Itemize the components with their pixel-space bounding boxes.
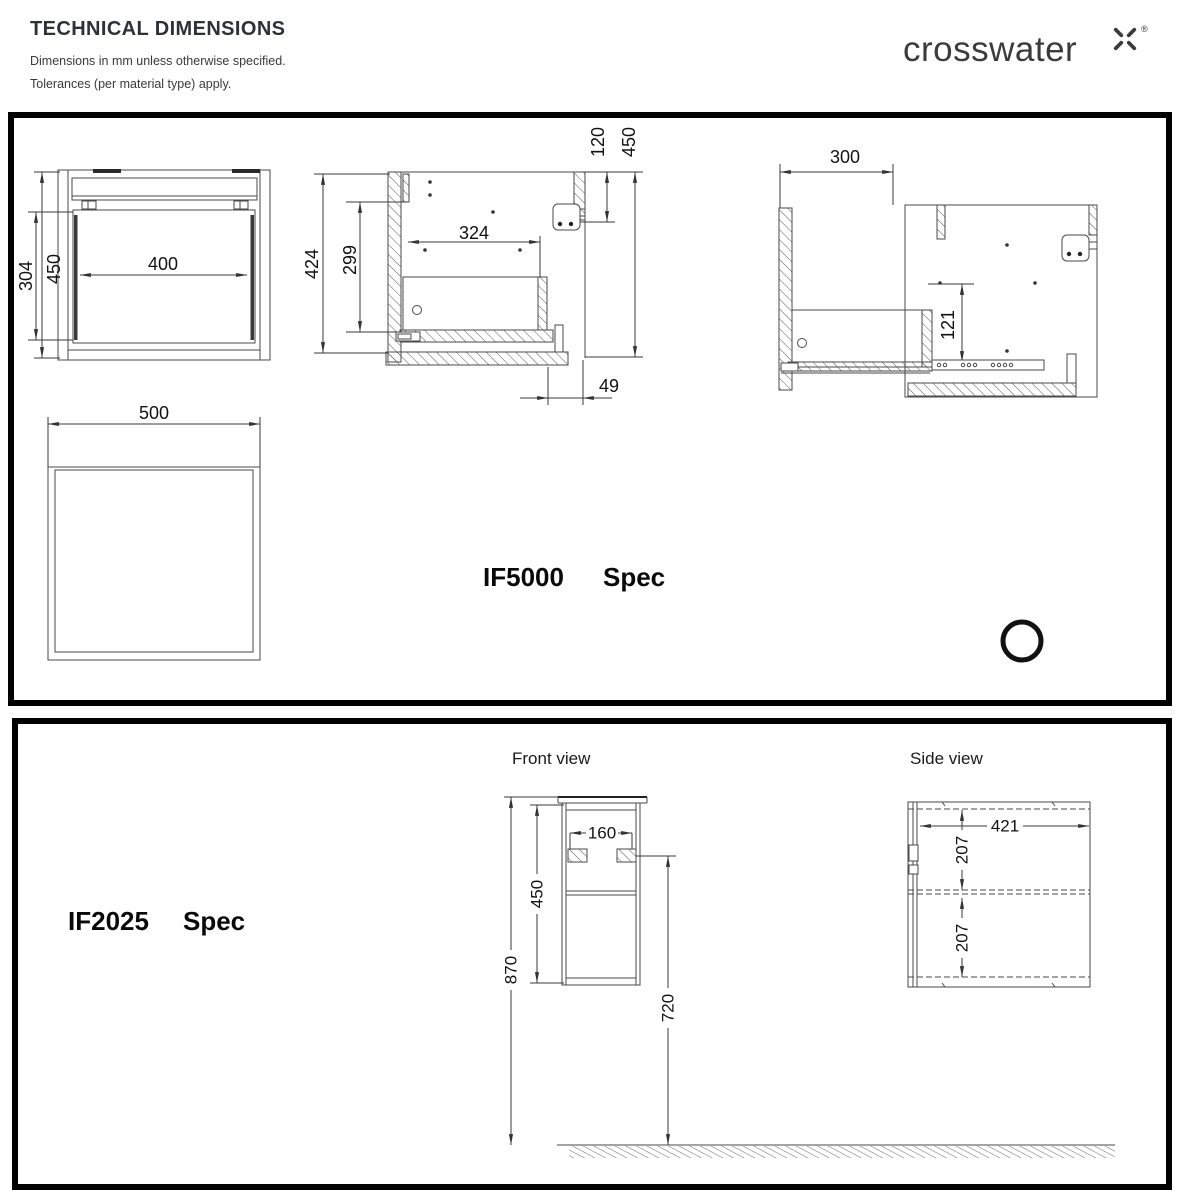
dim-section-drawer-height: 299 [340, 245, 360, 275]
technical-dimensions-sheet: { "header": { "title": "TECHNICAL DIMENS… [0, 0, 1200, 1200]
dim-front-height: 450 [44, 254, 64, 284]
if2025-panel: Front view Side view IF2025 Spec 160 450 [12, 718, 1172, 1190]
dim-section-bracket-offset: 120 [588, 127, 608, 157]
dim-overall-height: 870 [502, 956, 521, 984]
dim-hinge-span: 160 [588, 824, 616, 843]
side-view-title: Side view [910, 749, 983, 768]
if2025-panel-border [15, 721, 1169, 1187]
dim-open-drop: 121 [938, 310, 958, 340]
if5000-drawing-canvas: 400 304 450 [8, 112, 1172, 706]
dim-open-extension: 300 [830, 147, 860, 167]
note-units: Dimensions in mm unless otherwise specif… [30, 54, 286, 68]
dim-side-bottom-section: 207 [953, 924, 972, 952]
dim-side-depth: 421 [991, 817, 1019, 836]
if5000-model-name: IF5000 [483, 562, 564, 592]
if5000-panel-border [11, 115, 1169, 703]
registered-mark: ® [1141, 24, 1148, 34]
front-view-title: Front view [512, 749, 591, 768]
dim-front-inner-height: 304 [16, 261, 36, 291]
note-tolerances: Tolerances (per material type) apply. [30, 77, 231, 91]
detail-circle-mark [1003, 622, 1041, 660]
dim-front-inner-width: 400 [148, 254, 178, 274]
dim-side-top-section: 207 [953, 836, 972, 864]
if2025-front-view-drawing: 160 450 870 720 [502, 797, 678, 1145]
ground-line [557, 1145, 1115, 1158]
crosswater-logo: crosswater ® [903, 30, 1163, 85]
dim-section-depth: 450 [619, 127, 639, 157]
dim-plan-width: 500 [139, 403, 169, 423]
if2025-drawing-canvas: Front view Side view IF2025 Spec 160 450 [12, 718, 1172, 1190]
if5000-panel: 400 304 450 [8, 112, 1172, 706]
dim-section-inner-depth: 324 [459, 223, 489, 243]
if2025-model-name: IF2025 [68, 906, 149, 936]
dim-section-toe-offset: 49 [599, 376, 619, 396]
if5000-section-view-drawing: 424 299 324 120 450 49 [302, 127, 643, 405]
brand-wordmark: crosswater [903, 30, 1077, 69]
if5000-open-view-drawing: 300 121 [779, 147, 1097, 397]
if2025-side-view-drawing: 421 207 207 [908, 802, 1090, 987]
if5000-spec-label: Spec [603, 562, 665, 592]
if5000-plan-view-drawing: 500 [48, 403, 260, 660]
if5000-front-view-drawing: 400 304 450 [16, 169, 270, 360]
dim-section-height: 424 [302, 249, 322, 279]
if2025-spec-label: Spec [183, 906, 245, 936]
brand-x-icon [1112, 26, 1138, 52]
page-title: TECHNICAL DIMENSIONS [30, 18, 285, 41]
dim-underside-height: 720 [659, 994, 678, 1022]
dim-carcass-height: 450 [528, 880, 547, 908]
